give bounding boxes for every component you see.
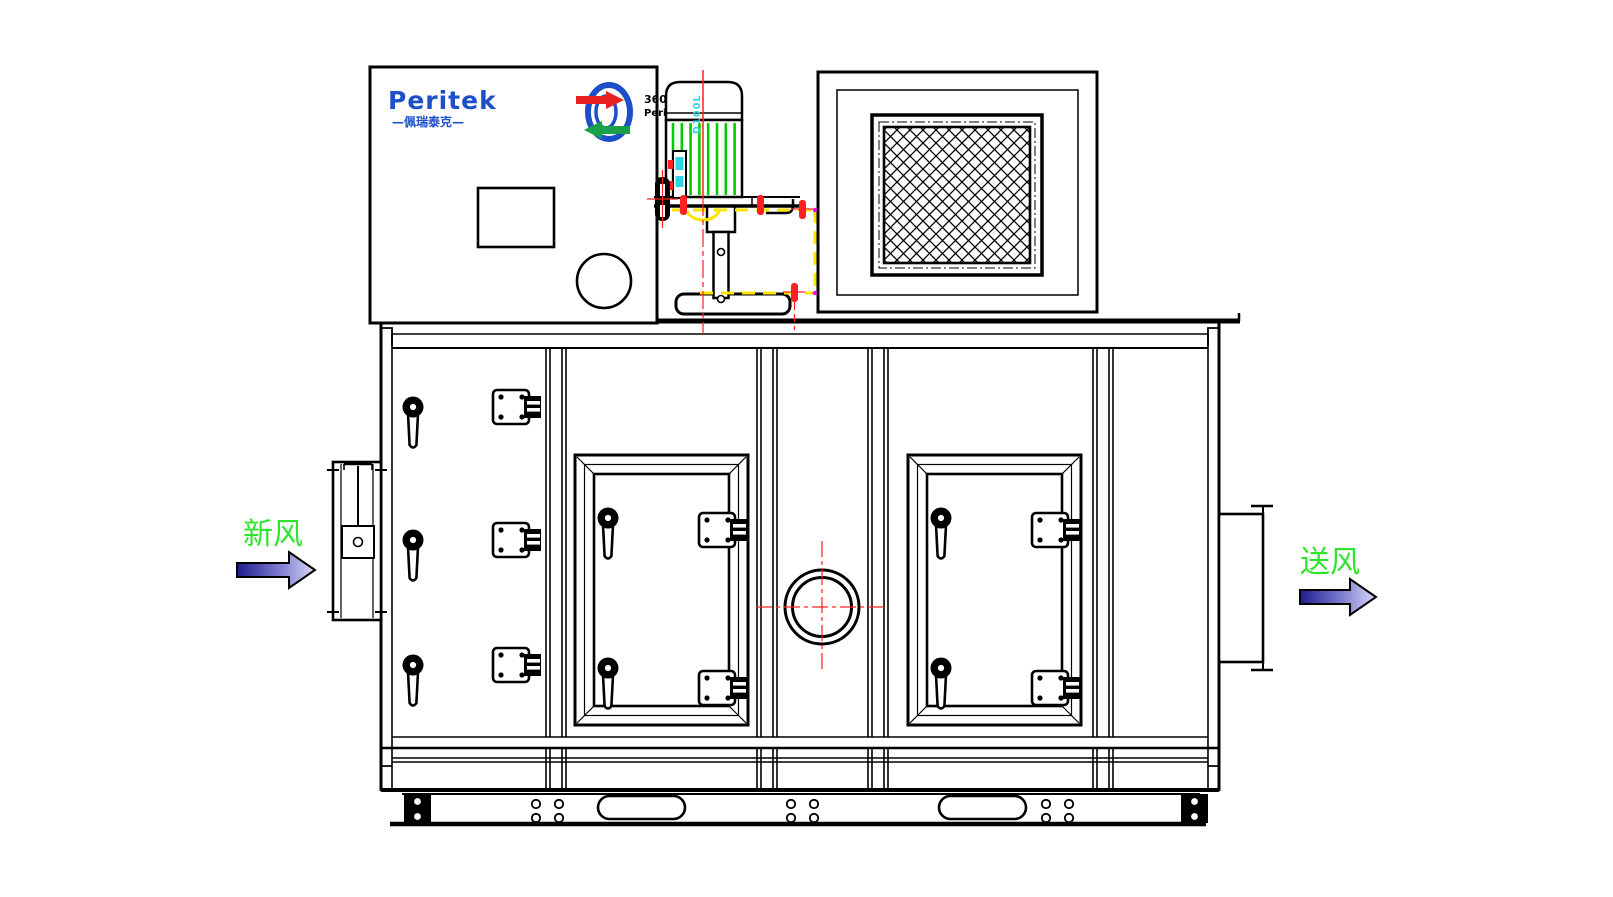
ahu-front-elevation-drawing: Peritek —佩瑞泰克— 360° Peritek	[0, 0, 1613, 897]
panel-latch	[493, 523, 541, 557]
control-cabinet: Peritek —佩瑞泰克— 360° Peritek	[370, 67, 685, 323]
snap-marker	[813, 208, 817, 212]
motor-model-label: D100L	[692, 94, 703, 134]
forklift-slot-left	[598, 796, 685, 819]
access-door-2	[908, 455, 1081, 725]
supply-air-outlet-duct	[1219, 506, 1273, 670]
filter-grille-section	[818, 72, 1097, 312]
supply-air-label: 送风	[1300, 545, 1360, 580]
phantom-outline-duct-connection	[672, 210, 815, 293]
supply-air-annotation: 送风	[1300, 545, 1376, 615]
fresh-air-label: 新风	[243, 517, 303, 552]
base-foot-bracket-right	[1181, 794, 1208, 823]
panel-latch	[493, 390, 541, 424]
mesh-filter-screen	[884, 127, 1030, 263]
motor-stand-column	[714, 232, 729, 298]
base-frame	[390, 794, 1208, 824]
forklift-slot-right	[939, 796, 1026, 819]
cad-drawing-page: Peritek —佩瑞泰克— 360° Peritek	[0, 0, 1613, 897]
panel-handle	[403, 397, 424, 448]
supply-air-arrow-icon	[1300, 579, 1376, 615]
panel-latch	[493, 648, 541, 682]
panel-divider	[1093, 348, 1113, 790]
base-foot-bracket-left	[404, 794, 431, 823]
access-door-1	[575, 455, 748, 725]
fresh-air-annotation: 新风	[237, 517, 315, 588]
fresh-air-inlet-damper	[327, 462, 387, 620]
panel-divider	[546, 348, 566, 790]
control-panel-cutout	[478, 188, 554, 247]
cable-gland-hole	[577, 254, 631, 308]
panel-divider	[868, 348, 888, 790]
rotor-drive-motor-assembly: D100L	[647, 70, 817, 334]
left-access-panel	[403, 390, 542, 706]
panel-handle	[403, 530, 424, 581]
panel-divider	[757, 348, 777, 790]
motor-stand-base	[676, 294, 790, 314]
brand-logo-text: Peritek	[388, 86, 497, 115]
brand-logo-chinese: —佩瑞泰克—	[392, 114, 464, 129]
snap-marker	[813, 291, 817, 295]
fresh-air-arrow-icon	[237, 552, 315, 588]
panel-handle	[403, 655, 424, 706]
